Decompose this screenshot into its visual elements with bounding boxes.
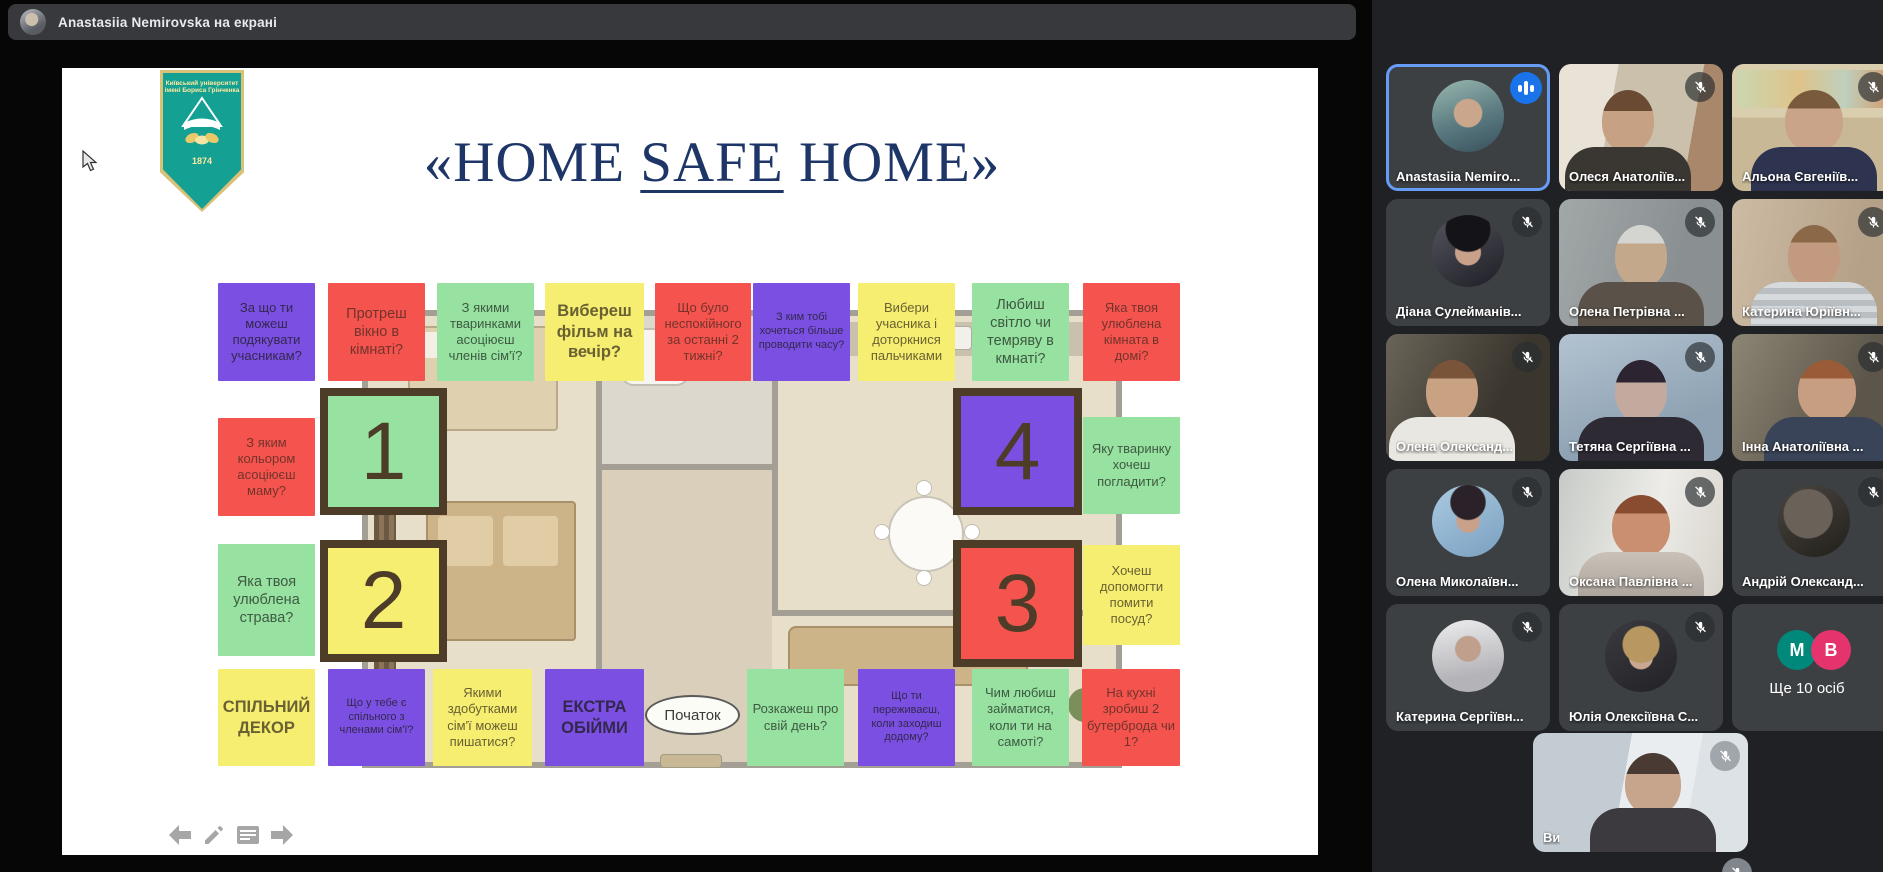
title-post: HOME» — [784, 131, 1001, 194]
participant-grid: Anastasiia Nemiro... Олеся Анатоліїв... … — [1372, 0, 1883, 872]
slide-title: «HOME SAFE HOME» — [322, 130, 1102, 195]
logo-emblem-icon — [174, 96, 230, 150]
screen-share-area: Anastasiia Nemirovska на екрані Київськи… — [0, 0, 1372, 872]
board-tile: Яка твоя улюблена страва? — [218, 544, 315, 656]
participant-tile[interactable]: Anastasiia Nemiro... — [1386, 64, 1550, 191]
board-square-2: 2 — [320, 540, 447, 662]
board-tile: Що ти переживаєш, коли заходиш додому? — [858, 669, 955, 766]
mic-off-icon — [1685, 207, 1715, 237]
participant-tile[interactable]: Тетяна Сергіївна ... — [1559, 334, 1723, 461]
board-tile: Протреш вікно в кімнаті? — [328, 283, 425, 381]
participant-name: Діана Сулейманів... — [1396, 304, 1522, 319]
participant-tile[interactable]: Олеся Анатоліїв... — [1559, 64, 1723, 191]
participant-name: Андрій Олександ... — [1742, 574, 1864, 589]
mic-off-icon — [1512, 342, 1542, 372]
board-tile: Яка твоя улюблена кімната в домі? — [1083, 283, 1180, 381]
speaking-indicator-icon — [1510, 72, 1542, 104]
mic-off-icon-partial — [1722, 858, 1752, 872]
board-tile: Що було неспокійного за останні 2 тижні? — [655, 283, 751, 381]
participant-name: Альона Євгеніїв... — [1742, 169, 1858, 184]
participant-name: Олена Олександ... — [1396, 439, 1513, 454]
board-square-3: 3 — [953, 540, 1082, 667]
avatar — [1432, 80, 1504, 152]
board-tile: Любиш світло чи темряву в кмнаті? — [972, 283, 1069, 381]
presenter-banner-label: Anastasiia Nemirovska на екрані — [58, 15, 277, 30]
self-name-label: Ви — [1543, 830, 1560, 845]
mic-off-icon — [1685, 342, 1715, 372]
participant-tile[interactable]: Андрій Олександ... — [1732, 469, 1883, 596]
participant-tile[interactable]: Катерина Юріївн... — [1732, 199, 1883, 326]
mic-off-icon — [1685, 612, 1715, 642]
mic-off-icon — [1685, 477, 1715, 507]
participant-name: Anastasiia Nemiro... — [1396, 169, 1520, 184]
board-tile: Що у тебе є спільного з членами сім'ї? — [328, 669, 425, 766]
mouse-cursor — [82, 150, 97, 173]
board-tile: На кухні зробиш 2 бутерброда чи 1? — [1082, 669, 1180, 766]
participant-name: Оксана Павлівна ... — [1569, 574, 1693, 589]
participant-name: Катерина Сергіївн... — [1396, 709, 1523, 724]
slide-nav-toolbar — [168, 823, 294, 847]
board-start-oval: Початок — [645, 695, 740, 735]
avatar — [1432, 485, 1504, 557]
participant-tile[interactable]: Олена Олександ... — [1386, 334, 1550, 461]
arrow-left-icon[interactable] — [168, 824, 192, 846]
board-square-4: 4 — [953, 388, 1082, 515]
avatar-badge-b: B — [1811, 630, 1851, 670]
presenter-avatar — [20, 9, 46, 35]
avatar — [1432, 215, 1504, 287]
board-tile: Вибери учасника і доторкнися пальчиками — [858, 283, 955, 381]
notes-icon[interactable] — [236, 825, 260, 845]
overflow-avatars: M B — [1777, 630, 1851, 670]
overflow-count-label: Ще 10 осіб — [1732, 680, 1882, 697]
mic-off-icon — [1685, 72, 1715, 102]
overflow-tile[interactable]: M B Ще 10 осіб — [1732, 604, 1883, 731]
presenter-banner: Anastasiia Nemirovska на екрані — [8, 4, 1356, 40]
mic-off-icon — [1858, 342, 1883, 372]
mic-off-icon — [1710, 741, 1740, 771]
participant-name: Юлія Олексіївна С... — [1569, 709, 1698, 724]
board-tile: ЕКСТРА ОБІЙМИ — [545, 669, 644, 766]
board-tile: Чим любиш займатися, коли ти на самоті? — [972, 669, 1069, 766]
participant-tile[interactable]: Катерина Сергіївн... — [1386, 604, 1550, 731]
board-tile: Яку тваринку хочеш погладити? — [1083, 417, 1180, 514]
mic-off-icon — [1858, 477, 1883, 507]
board-tile: Вибереш фільм на вечір? — [545, 283, 644, 381]
participant-tile[interactable]: Альона Євгеніїв... — [1732, 64, 1883, 191]
self-view-tile[interactable]: Ви — [1533, 733, 1748, 852]
avatar — [1605, 620, 1677, 692]
university-logo: Київський університет імені Бориса Грінч… — [160, 70, 244, 212]
presentation-slide: Київський університет імені Бориса Грінч… — [62, 68, 1318, 855]
title-pre: «HOME — [424, 131, 641, 194]
participant-tile[interactable]: Діана Сулейманів... — [1386, 199, 1550, 326]
mic-off-icon — [1512, 207, 1542, 237]
board-tile: Якими здобутками сім'ї можеш пишатися? — [433, 669, 532, 766]
participant-tile[interactable]: Олена Миколаївн... — [1386, 469, 1550, 596]
board-square-1: 1 — [320, 388, 447, 515]
board-tile: З ким тобі хочеться більше проводити час… — [753, 283, 850, 381]
avatar — [1432, 620, 1504, 692]
mic-off-icon — [1858, 72, 1883, 102]
board-tile: Хочеш допомогти помити посуд? — [1083, 545, 1180, 645]
logo-line2: імені Бориса Грінченка — [163, 87, 241, 94]
participant-tile[interactable]: Юлія Олексіївна С... — [1559, 604, 1723, 731]
board-tile: Розкажеш про свій день? — [747, 669, 844, 766]
participant-name: Олеся Анатоліїв... — [1569, 169, 1685, 184]
participant-tile[interactable]: Інна Анатоліївна ... — [1732, 334, 1883, 461]
participant-name: Олена Петрівна ... — [1569, 304, 1685, 319]
participant-name: Катерина Юріївн... — [1742, 304, 1861, 319]
mic-off-icon — [1512, 477, 1542, 507]
arrow-right-icon[interactable] — [270, 824, 294, 846]
mic-off-icon — [1858, 207, 1883, 237]
participant-tile[interactable]: Оксана Павлівна ... — [1559, 469, 1723, 596]
logo-year: 1874 — [163, 156, 241, 166]
participant-name: Тетяна Сергіївна ... — [1569, 439, 1691, 454]
title-underlined: SAFE — [640, 131, 783, 194]
board-tile: З яким кольором асоціюєш маму? — [218, 418, 315, 516]
logo-line1: Київський університет — [163, 80, 241, 87]
board-tile: З якими тваринками асоціюєш членів сім'ї… — [437, 283, 534, 381]
participant-tile[interactable]: Олена Петрівна ... — [1559, 199, 1723, 326]
avatar — [1778, 485, 1850, 557]
participant-name: Інна Анатоліївна ... — [1742, 439, 1864, 454]
board-tile: СПІЛЬНИЙ ДЕКОР — [218, 669, 315, 766]
board-tile: За що ти можеш подякувати учасникам? — [218, 283, 315, 381]
participant-name: Олена Миколаївн... — [1396, 574, 1519, 589]
pencil-icon[interactable] — [202, 823, 226, 847]
mic-off-icon — [1512, 612, 1542, 642]
